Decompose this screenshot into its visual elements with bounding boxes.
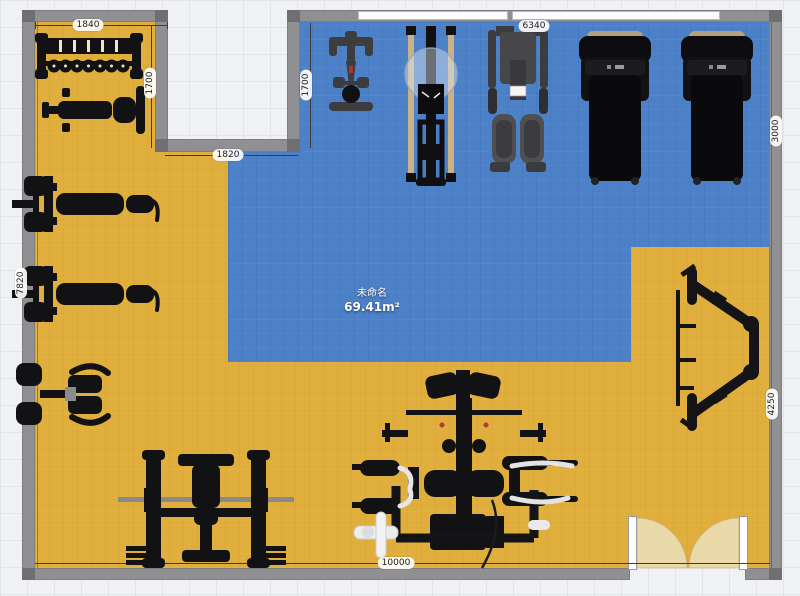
wall-corner bbox=[22, 568, 35, 580]
wall-corner bbox=[287, 10, 300, 22]
window[interactable] bbox=[512, 11, 720, 20]
room-area-label: 未命名 69.41m² bbox=[344, 288, 400, 314]
dimension-label-1700-hall: 1700 bbox=[300, 70, 312, 101]
dimension-tick bbox=[167, 22, 168, 29]
olympic-bench-press[interactable] bbox=[126, 446, 286, 572]
wall-corner bbox=[769, 568, 782, 580]
wall-notch-right[interactable] bbox=[155, 10, 168, 152]
window[interactable] bbox=[358, 11, 508, 20]
treadmill-2[interactable] bbox=[681, 31, 753, 191]
room-name: 未命名 bbox=[344, 288, 400, 300]
door-leaf-right[interactable] bbox=[739, 516, 748, 570]
dimension-label-4250: 4250 bbox=[766, 389, 778, 420]
rowing-machine[interactable] bbox=[404, 26, 458, 188]
dimension-label-1820: 1820 bbox=[213, 149, 244, 161]
floor-plan-canvas[interactable]: 未命名 69.41m² 1840 1700 1820 1700 6340 300… bbox=[0, 0, 800, 596]
spin-bike[interactable] bbox=[327, 31, 375, 121]
wall-corner bbox=[155, 10, 168, 22]
dimension-label-1840: 1840 bbox=[73, 19, 104, 31]
incline-frame[interactable] bbox=[658, 266, 766, 430]
dimension-tick bbox=[35, 22, 36, 29]
wall-hall-left[interactable] bbox=[287, 10, 300, 152]
dimension-line bbox=[771, 22, 772, 568]
dimension-label-3000: 3000 bbox=[770, 116, 782, 147]
multi-station-home-gym[interactable] bbox=[352, 368, 578, 572]
room-area-value: 69.41m² bbox=[344, 300, 400, 314]
dimension-label-10000: 10000 bbox=[378, 557, 415, 569]
double-door-swing-arcs[interactable] bbox=[637, 518, 739, 568]
bench-press-station-2[interactable] bbox=[12, 266, 158, 322]
wall-corner bbox=[22, 10, 35, 22]
dimension-label-6340: 6340 bbox=[519, 20, 550, 32]
wall-corner bbox=[287, 139, 300, 152]
door-leaf-left[interactable] bbox=[628, 516, 637, 570]
wall-corner bbox=[155, 139, 168, 152]
cable-gym[interactable] bbox=[488, 26, 548, 176]
dimension-label-7820: 7820 bbox=[15, 268, 27, 299]
seated-press-machine[interactable] bbox=[16, 360, 108, 428]
flat-bench[interactable] bbox=[42, 86, 145, 134]
dimension-label-1700-left: 1700 bbox=[144, 68, 156, 99]
wall-corner bbox=[769, 10, 782, 22]
dumbbell-rack[interactable] bbox=[35, 33, 143, 79]
bench-press-station-1[interactable] bbox=[12, 176, 158, 232]
treadmill-1[interactable] bbox=[579, 31, 651, 191]
